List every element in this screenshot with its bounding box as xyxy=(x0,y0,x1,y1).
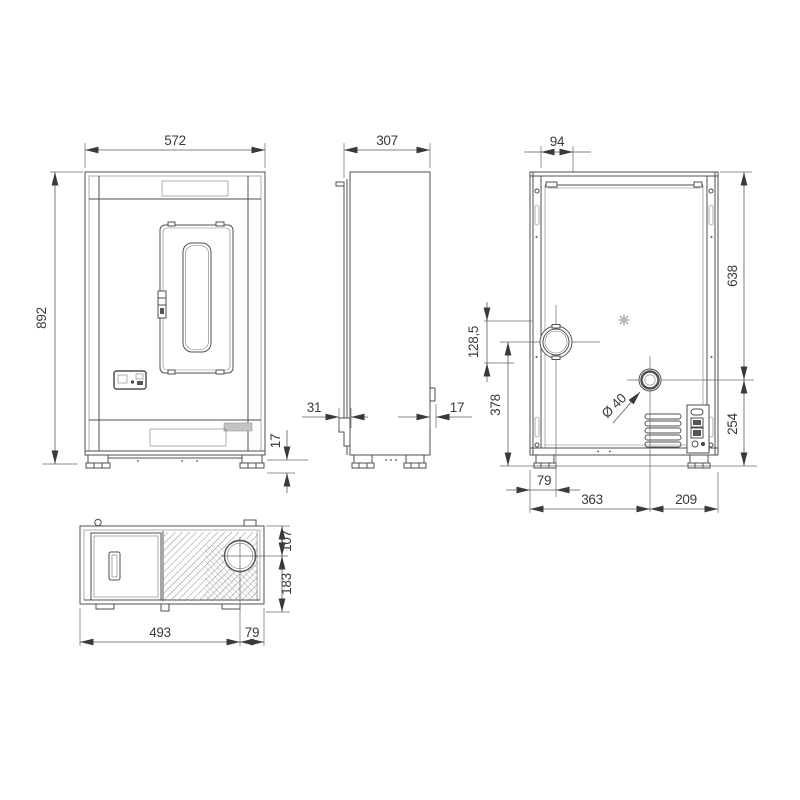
side-foot-rear xyxy=(404,455,426,468)
dimension-drawing-canvas: 572 892 xyxy=(0,0,800,800)
brand-label xyxy=(224,423,252,431)
side-body xyxy=(350,172,430,455)
side-front-step xyxy=(339,418,350,446)
control-panel xyxy=(114,371,146,389)
dim-top-flue-right-label: 79 xyxy=(245,625,259,640)
dim-side-depth-label: 307 xyxy=(376,133,398,148)
rear-spacer-bracket xyxy=(430,388,435,401)
front-foot-left xyxy=(86,455,110,468)
back-view: 94 xyxy=(466,134,757,513)
star-marker-icon xyxy=(619,315,630,326)
dim-side-front-step-label: 31 xyxy=(307,400,321,415)
dim-top-flue-bottom-label: 183 xyxy=(279,573,294,595)
dim-top-left-flue-label: 493 xyxy=(149,625,171,640)
front-view: 572 892 xyxy=(34,133,308,493)
dim-side-rear-offset-label: 17 xyxy=(450,400,464,415)
dim-back-flue-floor-label: 378 xyxy=(488,394,503,416)
hopper-lid xyxy=(91,533,161,600)
dim-top-edge-flue-label: 107 xyxy=(279,530,294,552)
door-latch xyxy=(158,291,166,318)
top-view: 107 183 493 79 xyxy=(80,519,294,646)
dim-back-flue-span-label: 128,5 xyxy=(466,326,481,358)
lid-hinge-pin xyxy=(95,519,101,525)
dim-front-plinth-label: 17 xyxy=(268,434,283,448)
dim-front-width-label: 572 xyxy=(164,133,186,148)
side-view: 307 31 17 xyxy=(302,133,472,468)
stove-dimension-drawing: 572 892 xyxy=(0,0,800,800)
dim-back-top-inlet-label: 638 xyxy=(725,265,740,287)
dim-back-left-flue-label: 79 xyxy=(537,473,551,488)
dim-back-inlet-left-label: 363 xyxy=(581,492,603,507)
dim-back-flue-offset-label: 94 xyxy=(550,134,565,149)
dim-back-inlet-right-label: 209 xyxy=(675,492,697,507)
side-foot-front xyxy=(352,455,374,468)
front-body xyxy=(85,172,265,455)
front-foot-right xyxy=(240,455,264,468)
dim-back-inlet-floor-label: 254 xyxy=(725,412,740,434)
dim-front-height-label: 892 xyxy=(34,307,49,329)
power-socket-module xyxy=(687,405,709,453)
